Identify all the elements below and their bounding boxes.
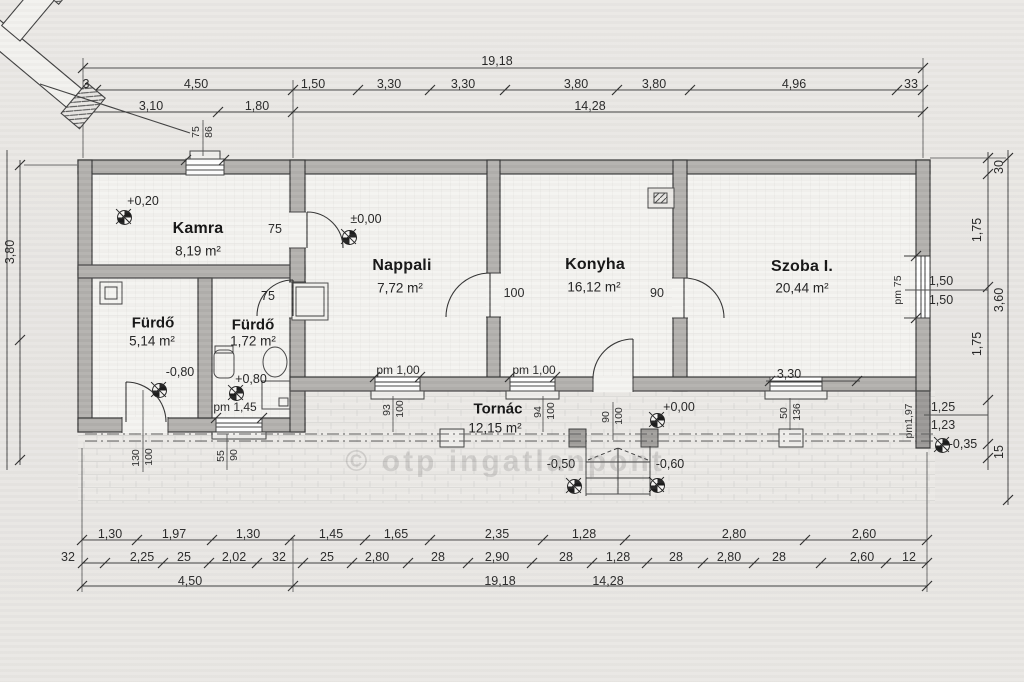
dim-label: 12 — [902, 551, 916, 564]
window-label: 93 — [382, 404, 393, 416]
dim-label: 3,30 — [451, 78, 475, 91]
room-area-furdo2: 1,72 m² — [230, 334, 276, 348]
level-marker — [935, 438, 950, 453]
dim-label: 1,75 — [971, 218, 984, 242]
window-label: pm1,97 — [904, 403, 915, 438]
window-label: pm 1,00 — [376, 364, 419, 376]
dim-label: 28 — [431, 551, 445, 564]
dim-label: 33 — [904, 78, 918, 91]
level-value: -0,35 — [949, 438, 978, 451]
dim-label: 14,28 — [574, 100, 605, 113]
window-label: pm 1,00 — [512, 364, 555, 376]
dim-label: 1,80 — [245, 100, 269, 113]
door-label: 130 — [131, 449, 142, 467]
level-marker — [650, 413, 665, 428]
room-label-furdo2: Fürdő — [232, 318, 275, 333]
door-label: 100 — [504, 287, 525, 300]
dim-label: 2,60 — [850, 551, 874, 564]
window-label: pm 1,45 — [213, 401, 256, 413]
window-label: pm 75 — [893, 275, 904, 304]
dim-label: 1,28 — [572, 528, 596, 541]
dim-label: 3,80 — [642, 78, 666, 91]
watermark: © otp ingatlanpont — [345, 445, 664, 479]
window-label: 86 — [204, 126, 215, 138]
dim-label: 2,80 — [365, 551, 389, 564]
window-label: 1,50 — [929, 275, 953, 288]
dim-label: 32 — [272, 551, 286, 564]
level-marker — [229, 386, 244, 401]
room-label-szoba: Szoba I. — [771, 259, 833, 275]
door-label: 100 — [144, 448, 155, 466]
dim-label: 1,25 — [931, 401, 955, 414]
dim-label: 1,50 — [301, 78, 325, 91]
room-label-konyha: Konyha — [565, 257, 625, 273]
room-area-szoba: 20,44 m² — [775, 281, 828, 295]
dim-label: 28 — [772, 551, 786, 564]
dim-label: 1,28 — [606, 551, 630, 564]
dim-label: 2,25 — [130, 551, 154, 564]
dim-label: 3,80 — [564, 78, 588, 91]
window-label: 100 — [395, 400, 406, 418]
dim-label: 2,35 — [485, 528, 509, 541]
dim-label: 3,60 — [993, 288, 1006, 312]
window-label: 3,30 — [777, 368, 801, 381]
level-marker — [342, 230, 357, 245]
dim-label: 19,18 — [481, 55, 512, 68]
room-area-nappali: 7,72 m² — [377, 281, 423, 295]
window-label: 100 — [546, 402, 557, 420]
dim-label: 30 — [993, 160, 1006, 174]
dim-label: 2,80 — [717, 551, 741, 564]
window-label: 50 — [779, 407, 790, 419]
door-label: 75 — [261, 290, 275, 303]
dim-label: 25 — [177, 551, 191, 564]
level-marker — [152, 383, 167, 398]
room-label-nappali: Nappali — [372, 258, 431, 274]
dim-label: 1,30 — [236, 528, 260, 541]
level-value: -0,80 — [166, 366, 195, 379]
room-area-kamra: 8,19 m² — [175, 244, 221, 258]
window-label: 55 — [216, 450, 227, 462]
dim-label: 1,30 — [98, 528, 122, 541]
dim-label: 4,96 — [782, 78, 806, 91]
floorplan-page: 19,18 3 4,50 1,50 3,30 3,30 3,80 3,80 4,… — [0, 0, 1024, 682]
dim-label: 32 — [61, 551, 75, 564]
window-label: 94 — [533, 406, 544, 418]
door-label: 75 — [268, 223, 282, 236]
dim-label: 1,23 — [931, 419, 955, 432]
level-marker — [650, 478, 665, 493]
room-area-tornac: 12,15 m² — [468, 421, 521, 435]
door-label: 90 — [650, 287, 664, 300]
dim-label: 28 — [559, 551, 573, 564]
level-value: ±0,00 — [350, 213, 381, 226]
window-label: 90 — [229, 449, 240, 461]
room-label-tornac: Tornác — [474, 402, 523, 417]
dim-label: 1,97 — [162, 528, 186, 541]
corner-detail — [0, 0, 190, 133]
room-area-furdo1: 5,14 m² — [129, 334, 175, 348]
dim-label: 2,80 — [722, 528, 746, 541]
room-label-kamra: Kamra — [173, 221, 224, 237]
dim-label: 1,65 — [384, 528, 408, 541]
dim-label: 4,50 — [178, 575, 202, 588]
entrance-label: 100 — [614, 407, 625, 425]
dim-label: 4,50 — [184, 78, 208, 91]
window-label: 1,50 — [929, 294, 953, 307]
level-value: +0,20 — [127, 195, 159, 208]
dim-label: 3,80 — [4, 240, 17, 264]
dim-label: 1,75 — [971, 332, 984, 356]
dim-label: 2,60 — [852, 528, 876, 541]
dim-label: 15 — [993, 445, 1006, 459]
dim-label: 3 — [83, 78, 90, 91]
level-marker — [567, 479, 582, 494]
dim-label: 25 — [320, 551, 334, 564]
dim-label: 1,45 — [319, 528, 343, 541]
entrance-label: 90 — [601, 411, 612, 423]
window-label: 75 — [191, 126, 202, 138]
level-value: +0,00 — [663, 401, 695, 414]
room-label-furdo1: Fürdő — [132, 316, 175, 331]
window-label: 136 — [792, 403, 803, 421]
dim-label: 14,28 — [592, 575, 623, 588]
dim-label: 28 — [669, 551, 683, 564]
dim-label: 2,90 — [485, 551, 509, 564]
level-marker — [117, 210, 132, 225]
level-value: +0,80 — [235, 373, 267, 386]
dim-label: 3,30 — [377, 78, 401, 91]
dim-label: 3,10 — [139, 100, 163, 113]
dim-label: 19,18 — [484, 575, 515, 588]
dim-label: 2,02 — [222, 551, 246, 564]
room-area-konyha: 16,12 m² — [567, 280, 620, 294]
